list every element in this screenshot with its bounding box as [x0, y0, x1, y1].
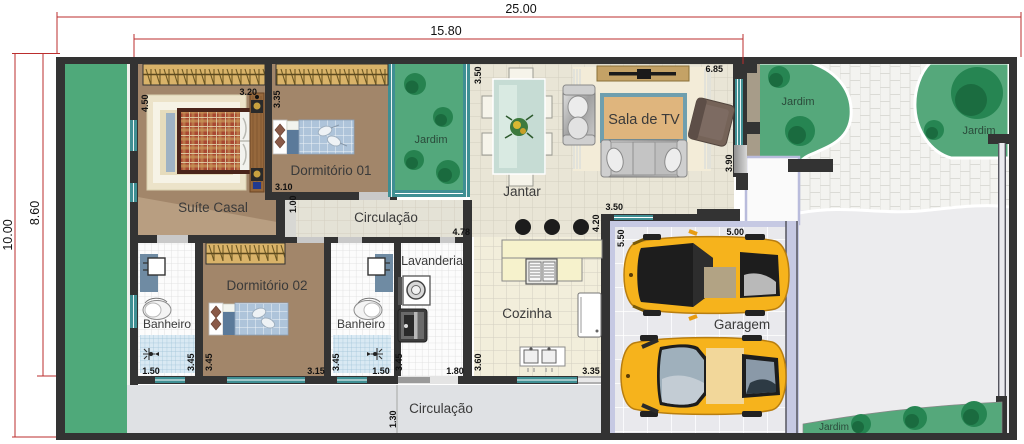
svg-text:Circulação: Circulação [354, 210, 418, 225]
svg-text:Jantar: Jantar [503, 184, 541, 199]
svg-text:3.90: 3.90 [724, 154, 734, 172]
svg-text:3.45: 3.45 [394, 353, 404, 371]
svg-text:Circulação: Circulação [409, 401, 473, 416]
svg-text:1.50: 1.50 [372, 366, 390, 376]
svg-text:8.60: 8.60 [28, 201, 42, 225]
svg-text:Dormitório 02: Dormitório 02 [226, 278, 307, 293]
svg-text:3.10: 3.10 [275, 182, 293, 192]
svg-text:3.20: 3.20 [239, 87, 257, 97]
svg-text:Suíte Casal: Suíte Casal [178, 200, 248, 215]
svg-text:10.00: 10.00 [1, 219, 15, 250]
svg-text:3.50: 3.50 [605, 202, 623, 212]
svg-text:3.15: 3.15 [307, 366, 325, 376]
svg-text:4.20: 4.20 [591, 214, 601, 232]
svg-text:15.80: 15.80 [430, 24, 461, 38]
svg-text:1.30: 1.30 [388, 410, 398, 428]
svg-text:3.45: 3.45 [186, 353, 196, 371]
svg-text:Cozinha: Cozinha [502, 306, 552, 321]
svg-text:Sala de TV: Sala de TV [608, 112, 680, 128]
svg-text:1.00: 1.00 [288, 195, 298, 213]
svg-text:3.35: 3.35 [582, 366, 600, 376]
svg-text:4.78: 4.78 [452, 227, 470, 237]
svg-text:Jardim: Jardim [414, 134, 447, 146]
svg-text:5.50: 5.50 [616, 229, 626, 247]
svg-text:Jardim: Jardim [962, 125, 995, 137]
svg-text:1.50: 1.50 [142, 366, 160, 376]
svg-text:3.50: 3.50 [473, 66, 483, 84]
svg-text:3.45: 3.45 [331, 353, 341, 371]
svg-text:4.50: 4.50 [140, 94, 150, 112]
svg-text:3.35: 3.35 [272, 90, 282, 108]
svg-text:Jardim: Jardim [781, 96, 814, 108]
svg-text:3.60: 3.60 [473, 353, 483, 371]
svg-text:Jardim: Jardim [819, 422, 849, 433]
svg-text:3.45: 3.45 [204, 353, 214, 371]
svg-text:6.85: 6.85 [705, 64, 723, 74]
svg-text:Banheiro: Banheiro [337, 317, 385, 331]
svg-text:Lavanderia: Lavanderia [401, 254, 463, 268]
svg-text:25.00: 25.00 [505, 2, 536, 16]
svg-text:Garagem: Garagem [714, 317, 770, 332]
svg-text:1.80: 1.80 [446, 366, 464, 376]
svg-text:Dormitório 01: Dormitório 01 [290, 163, 371, 178]
svg-text:Banheiro: Banheiro [143, 317, 191, 331]
svg-text:5.00: 5.00 [726, 227, 744, 237]
